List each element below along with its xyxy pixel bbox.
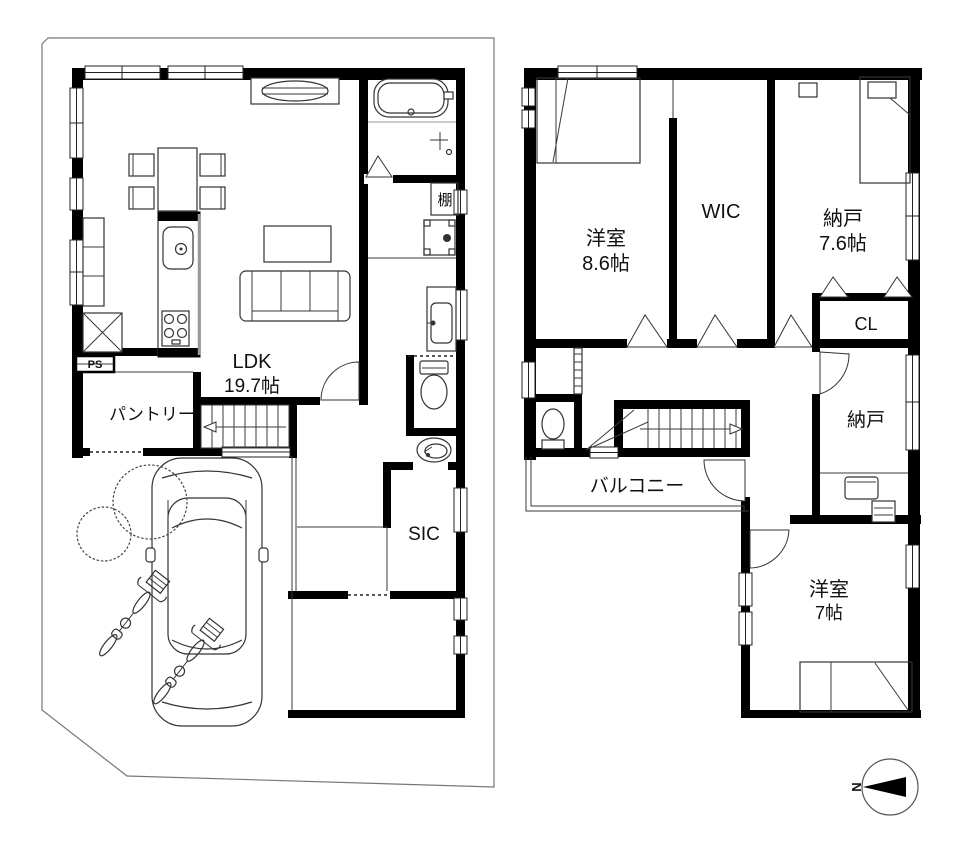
room-label-ps: PS (88, 359, 103, 371)
stove (162, 311, 189, 346)
toilet-1f (420, 361, 448, 409)
toilet-2f (542, 409, 564, 449)
room-label-sic: SIC (408, 524, 440, 545)
tv-board (251, 78, 339, 104)
floor2-walls (524, 68, 922, 718)
washroom-door (366, 156, 392, 177)
room-label-wic: WIC (702, 201, 741, 223)
dining-table (129, 148, 225, 211)
stairs-2f (586, 409, 742, 450)
stool (872, 501, 895, 522)
floor-plan-page: LDK 19.7帖 パントリー PS 棚 SIC (0, 0, 960, 853)
room-label-cl: CL (854, 314, 877, 334)
sofa (240, 271, 350, 321)
room-label-pantry: パントリー (109, 405, 195, 424)
room-label-balcony: バルコニー (590, 476, 685, 497)
washing-machine (424, 220, 455, 255)
floor1-plan: LDK 19.7帖 パントリー PS 棚 SIC (70, 66, 467, 726)
room-size-bedroom-7: 7帖 (815, 603, 843, 623)
bathtub (374, 79, 453, 117)
stair-handrail (574, 348, 582, 394)
room-label-storage-76: 納戸 (823, 207, 863, 230)
hatch-box (83, 313, 122, 352)
coffee-table (264, 226, 331, 262)
entrance-basin (417, 438, 451, 462)
room-label-storage-2: 納戸 (847, 409, 885, 431)
stairs-1f (201, 405, 289, 448)
room-label-bedroom-7: 洋室 (809, 578, 849, 601)
compass: N (849, 759, 918, 815)
kitchen-sink (163, 227, 193, 269)
room-size-ldk: 19.7帖 (224, 375, 280, 397)
floor-plan-drawing: LDK 19.7帖 パントリー PS 棚 SIC (0, 0, 960, 853)
ldk-door (321, 362, 359, 400)
desk (845, 477, 878, 499)
room-size-storage-76: 7.6帖 (819, 232, 867, 255)
bed-storage-76 (860, 77, 910, 183)
bed-bedroom-7 (800, 662, 912, 712)
bicycles (87, 566, 229, 714)
trees (77, 465, 187, 561)
vanity-sink (427, 287, 456, 351)
bed-bedroom-86 (537, 78, 640, 163)
side-cabinet (83, 218, 104, 306)
compass-north-label: N (849, 782, 864, 791)
room-size-bedroom-86: 8.6帖 (582, 252, 630, 275)
washroom-faucet (430, 132, 452, 155)
floor2-plan: 洋室 8.6帖 WIC 納戸 7.6帖 CL 納戸 バルコニー 洋室 7帖 (522, 66, 922, 718)
room-label-bedroom-86: 洋室 (586, 227, 626, 250)
room-label-ldk: LDK (233, 351, 273, 373)
room-label-shelf: 棚 (437, 192, 452, 209)
